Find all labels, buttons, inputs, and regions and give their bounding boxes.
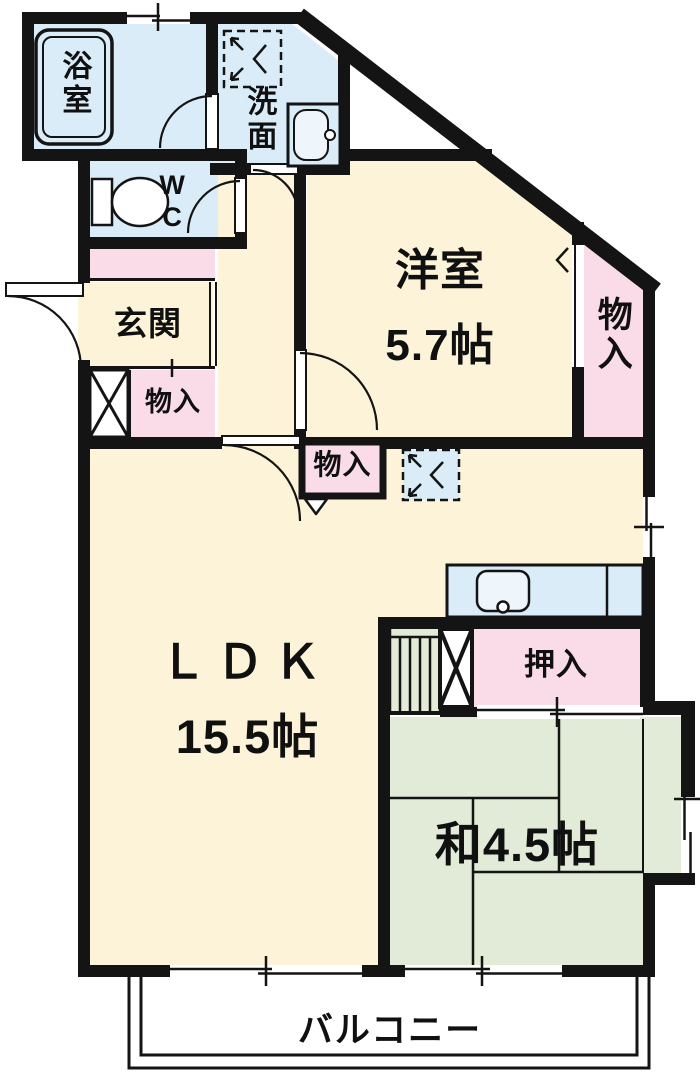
hallway-floor bbox=[218, 175, 295, 449]
ldk-size: 15.5帖 bbox=[130, 712, 365, 763]
japanese-room-label: 和4.5帖 bbox=[392, 820, 642, 871]
entrance-label: 玄関 bbox=[96, 306, 200, 342]
western-room-size: 5.7帖 bbox=[330, 322, 550, 370]
entrance-cabinet bbox=[90, 249, 215, 278]
balcony-label: バルコニー bbox=[240, 1012, 540, 1050]
entry-door bbox=[6, 283, 83, 369]
closet-label: 押入 bbox=[472, 648, 640, 681]
bath-label: 浴室 bbox=[57, 50, 89, 118]
entrance-storage-label: 物入 bbox=[131, 388, 215, 417]
floorplan-page: 浴室 洗面 WC 玄関 物入 洋室 5.7帖 物入 物入 ＬＤＫ 15.5帖 押… bbox=[0, 0, 700, 1080]
vanity-sink-icon bbox=[288, 104, 340, 166]
ldk-storage-label: 物入 bbox=[298, 450, 387, 480]
ldk-label: ＬＤＫ bbox=[130, 637, 350, 688]
washroom-label: 洗面 bbox=[242, 86, 274, 154]
washer-pan-icon bbox=[224, 31, 281, 87]
floorplan-canvas bbox=[0, 0, 700, 1080]
kitchen-counter-icon bbox=[447, 565, 643, 617]
wc-label: WC bbox=[157, 170, 186, 234]
east-storage-label: 物入 bbox=[593, 296, 631, 374]
pipe-shaft-x-icon bbox=[440, 629, 472, 707]
bay-window-floor bbox=[643, 717, 683, 873]
pipe-shaft-x-icon bbox=[90, 370, 128, 437]
washer-pan-icon bbox=[403, 450, 459, 500]
western-room-label: 洋室 bbox=[330, 247, 550, 295]
sliding-panel-strip bbox=[390, 625, 440, 713]
